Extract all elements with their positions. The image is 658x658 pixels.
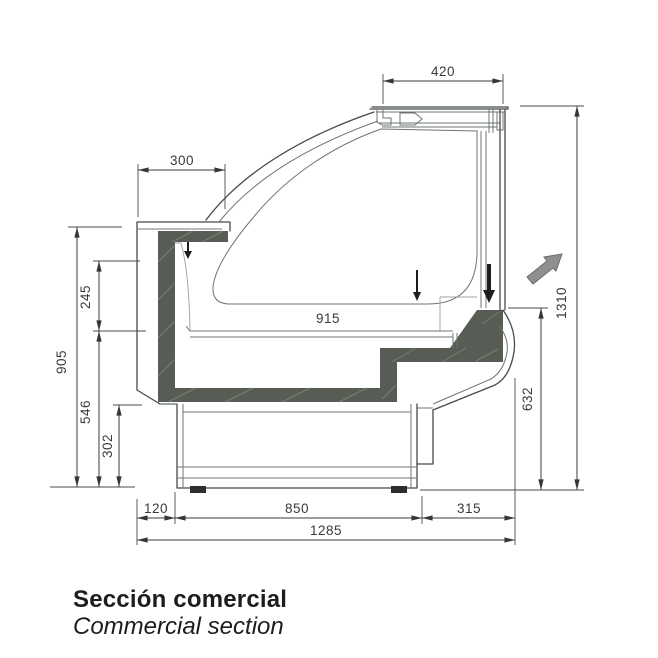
dimension-1285: 1285 [137, 523, 515, 540]
deck-airflow-arrow [413, 270, 421, 301]
technical-drawing-page: 420 300 915 905 245 546 302 [0, 0, 658, 658]
dimension-850: 850 [175, 496, 422, 524]
left-airflow-arrow [184, 242, 192, 259]
dim-302-label: 302 [100, 434, 115, 458]
dim-315-label: 315 [457, 501, 481, 516]
left-foot [190, 486, 206, 493]
section-drawing: 420 300 915 905 245 546 302 [0, 0, 658, 658]
dimension-120: 120 [137, 492, 175, 545]
dimension-905: 905 [50, 227, 135, 487]
dimension-546: 546 [78, 331, 99, 487]
dim-420-label: 420 [431, 64, 455, 79]
worktop [137, 222, 230, 404]
deck-surface [186, 326, 457, 348]
dimension-300: 300 [138, 153, 225, 217]
dim-915-label: 915 [316, 311, 340, 326]
canopy-rear-bracket [489, 109, 503, 133]
dimension-302: 302 [100, 405, 142, 487]
curved-glass-outer [206, 112, 374, 220]
dim-546-label: 546 [78, 400, 93, 424]
caption-english: Commercial section [73, 613, 287, 640]
dimension-1310: 1310 [420, 106, 584, 490]
right-foot [391, 486, 407, 493]
display-cavity [213, 129, 477, 304]
dimension-245: 245 [78, 261, 146, 331]
dimension-420: 420 [383, 64, 503, 104]
flow-direction-arrow [527, 254, 562, 284]
insulation-left-wall [158, 231, 397, 402]
vertical-glass-panel [500, 110, 505, 310]
dim-632-label: 632 [520, 387, 535, 411]
airflow-arrows [184, 242, 495, 303]
dim-905-label: 905 [54, 350, 69, 374]
curved-glass-inner [219, 121, 378, 222]
rear-duct-airflow-arrow [483, 264, 495, 303]
caption: Sección comercial Commercial section [73, 586, 287, 640]
dim-1285-label: 1285 [310, 523, 342, 538]
dim-245-label: 245 [78, 285, 93, 309]
dim-120-label: 120 [144, 501, 168, 516]
caption-spanish: Sección comercial [73, 586, 287, 613]
dim-300-label: 300 [170, 153, 194, 168]
dim-850-label: 850 [285, 501, 309, 516]
base-box [177, 404, 417, 488]
dim-1310-label: 1310 [554, 287, 569, 319]
